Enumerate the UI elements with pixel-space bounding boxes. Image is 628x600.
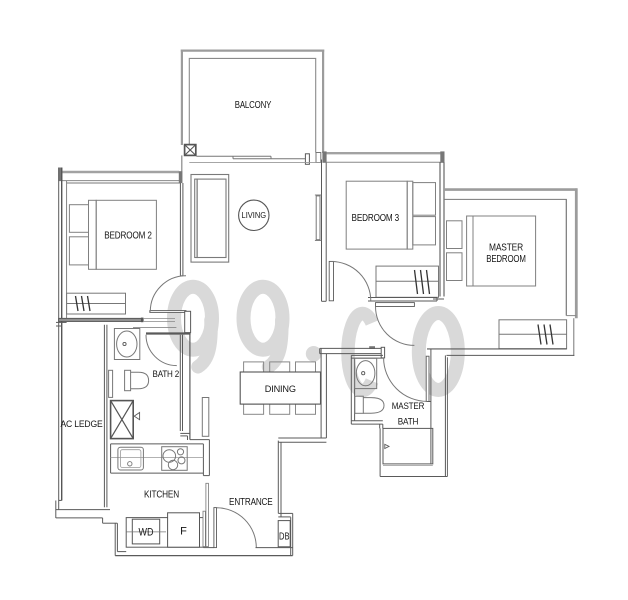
svg-text:ENTRANCE: ENTRANCE [229,497,273,508]
svg-text:KITCHEN: KITCHEN [144,490,179,501]
svg-text:BEDROOM: BEDROOM [486,254,526,265]
svg-text:AC LEDGE: AC LEDGE [61,419,103,429]
svg-text:BALCONY: BALCONY [235,100,272,111]
svg-text:WD: WD [139,526,154,538]
svg-text:F: F [180,525,187,537]
svg-text:BEDROOM 3: BEDROOM 3 [352,213,400,224]
svg-text:DB: DB [279,531,290,542]
svg-text:DINING: DINING [265,384,296,395]
svg-text:BATH 2: BATH 2 [153,369,180,379]
svg-text:MASTER: MASTER [489,242,523,253]
svg-text:BEDROOM 2: BEDROOM 2 [104,230,152,241]
svg-text:LIVING: LIVING [242,210,267,220]
svg-text:MASTER: MASTER [392,401,425,412]
svg-text:BATH: BATH [398,416,419,427]
